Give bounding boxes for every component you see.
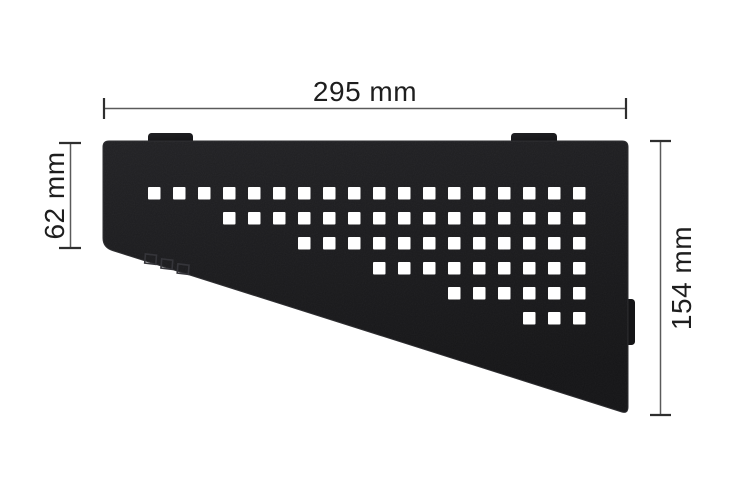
perforation-square — [448, 237, 461, 250]
perforation-square — [398, 187, 411, 200]
perforation-square — [548, 287, 561, 300]
perforation-square — [298, 187, 311, 200]
perforation-square — [473, 212, 486, 225]
perforation-square — [273, 212, 286, 225]
diagram-canvas: 295 mm 62 mm 154 mm — [0, 0, 733, 497]
perforation-square — [148, 187, 161, 200]
perforation-square — [423, 187, 436, 200]
perforation-square — [248, 212, 261, 225]
perforation-square — [323, 237, 336, 250]
perforation-square — [173, 187, 186, 200]
perforation-square — [398, 237, 411, 250]
perforation-square — [448, 187, 461, 200]
dimension-left-label: 62 mm — [39, 151, 70, 239]
shelf-texture — [103, 141, 628, 412]
perforation-square — [473, 287, 486, 300]
perforation-square — [548, 312, 561, 325]
perforation-square — [248, 187, 261, 200]
perforation-square — [573, 312, 586, 325]
perforation-square — [373, 237, 386, 250]
perforation-square — [498, 262, 511, 275]
perforation-square — [548, 262, 561, 275]
perforation-square — [423, 262, 436, 275]
perforation-square — [523, 212, 536, 225]
perforation-square — [223, 187, 236, 200]
dimension-width-label: 295 mm — [313, 76, 417, 107]
perforation-square — [198, 187, 211, 200]
shelf-dimension-diagram: 295 mm 62 mm 154 mm — [0, 0, 733, 497]
perforation-square — [348, 237, 361, 250]
perforation-square — [523, 312, 536, 325]
perforation-square — [573, 262, 586, 275]
perforation-square — [323, 212, 336, 225]
perforation-square — [473, 237, 486, 250]
dimension-right-height: 154 mm — [650, 141, 697, 415]
perforation-square — [573, 287, 586, 300]
perforation-square — [573, 212, 586, 225]
perforation-square — [498, 187, 511, 200]
perforation-square — [498, 287, 511, 300]
perforation-square — [448, 262, 461, 275]
perforation-square — [523, 287, 536, 300]
perforation-square — [298, 237, 311, 250]
perforation-square — [473, 262, 486, 275]
dimension-width: 295 mm — [104, 76, 626, 119]
perforation-square — [498, 237, 511, 250]
perforation-square — [298, 212, 311, 225]
perforation-square — [448, 212, 461, 225]
perforation-square — [423, 237, 436, 250]
perforation-square — [473, 187, 486, 200]
perforation-square — [548, 187, 561, 200]
perforation-square — [498, 212, 511, 225]
perforation-square — [398, 212, 411, 225]
dimension-left-height: 62 mm — [39, 143, 81, 248]
perforation-square — [223, 212, 236, 225]
perforation-square — [523, 262, 536, 275]
perforation-square — [548, 212, 561, 225]
perforation-square — [348, 212, 361, 225]
perforation-square — [548, 237, 561, 250]
perforation-square — [323, 187, 336, 200]
perforation-square — [573, 187, 586, 200]
perforation-square — [523, 237, 536, 250]
perforation-square — [423, 212, 436, 225]
perforation-square — [523, 187, 536, 200]
perforation-square — [373, 212, 386, 225]
perforation-square — [373, 187, 386, 200]
perforation-square — [398, 262, 411, 275]
perforation-square — [573, 237, 586, 250]
perforation-square — [348, 187, 361, 200]
perforation-square — [448, 287, 461, 300]
shelf — [103, 133, 635, 412]
dimension-right-label: 154 mm — [666, 226, 697, 330]
perforation-square — [273, 187, 286, 200]
perforation-square — [373, 262, 386, 275]
